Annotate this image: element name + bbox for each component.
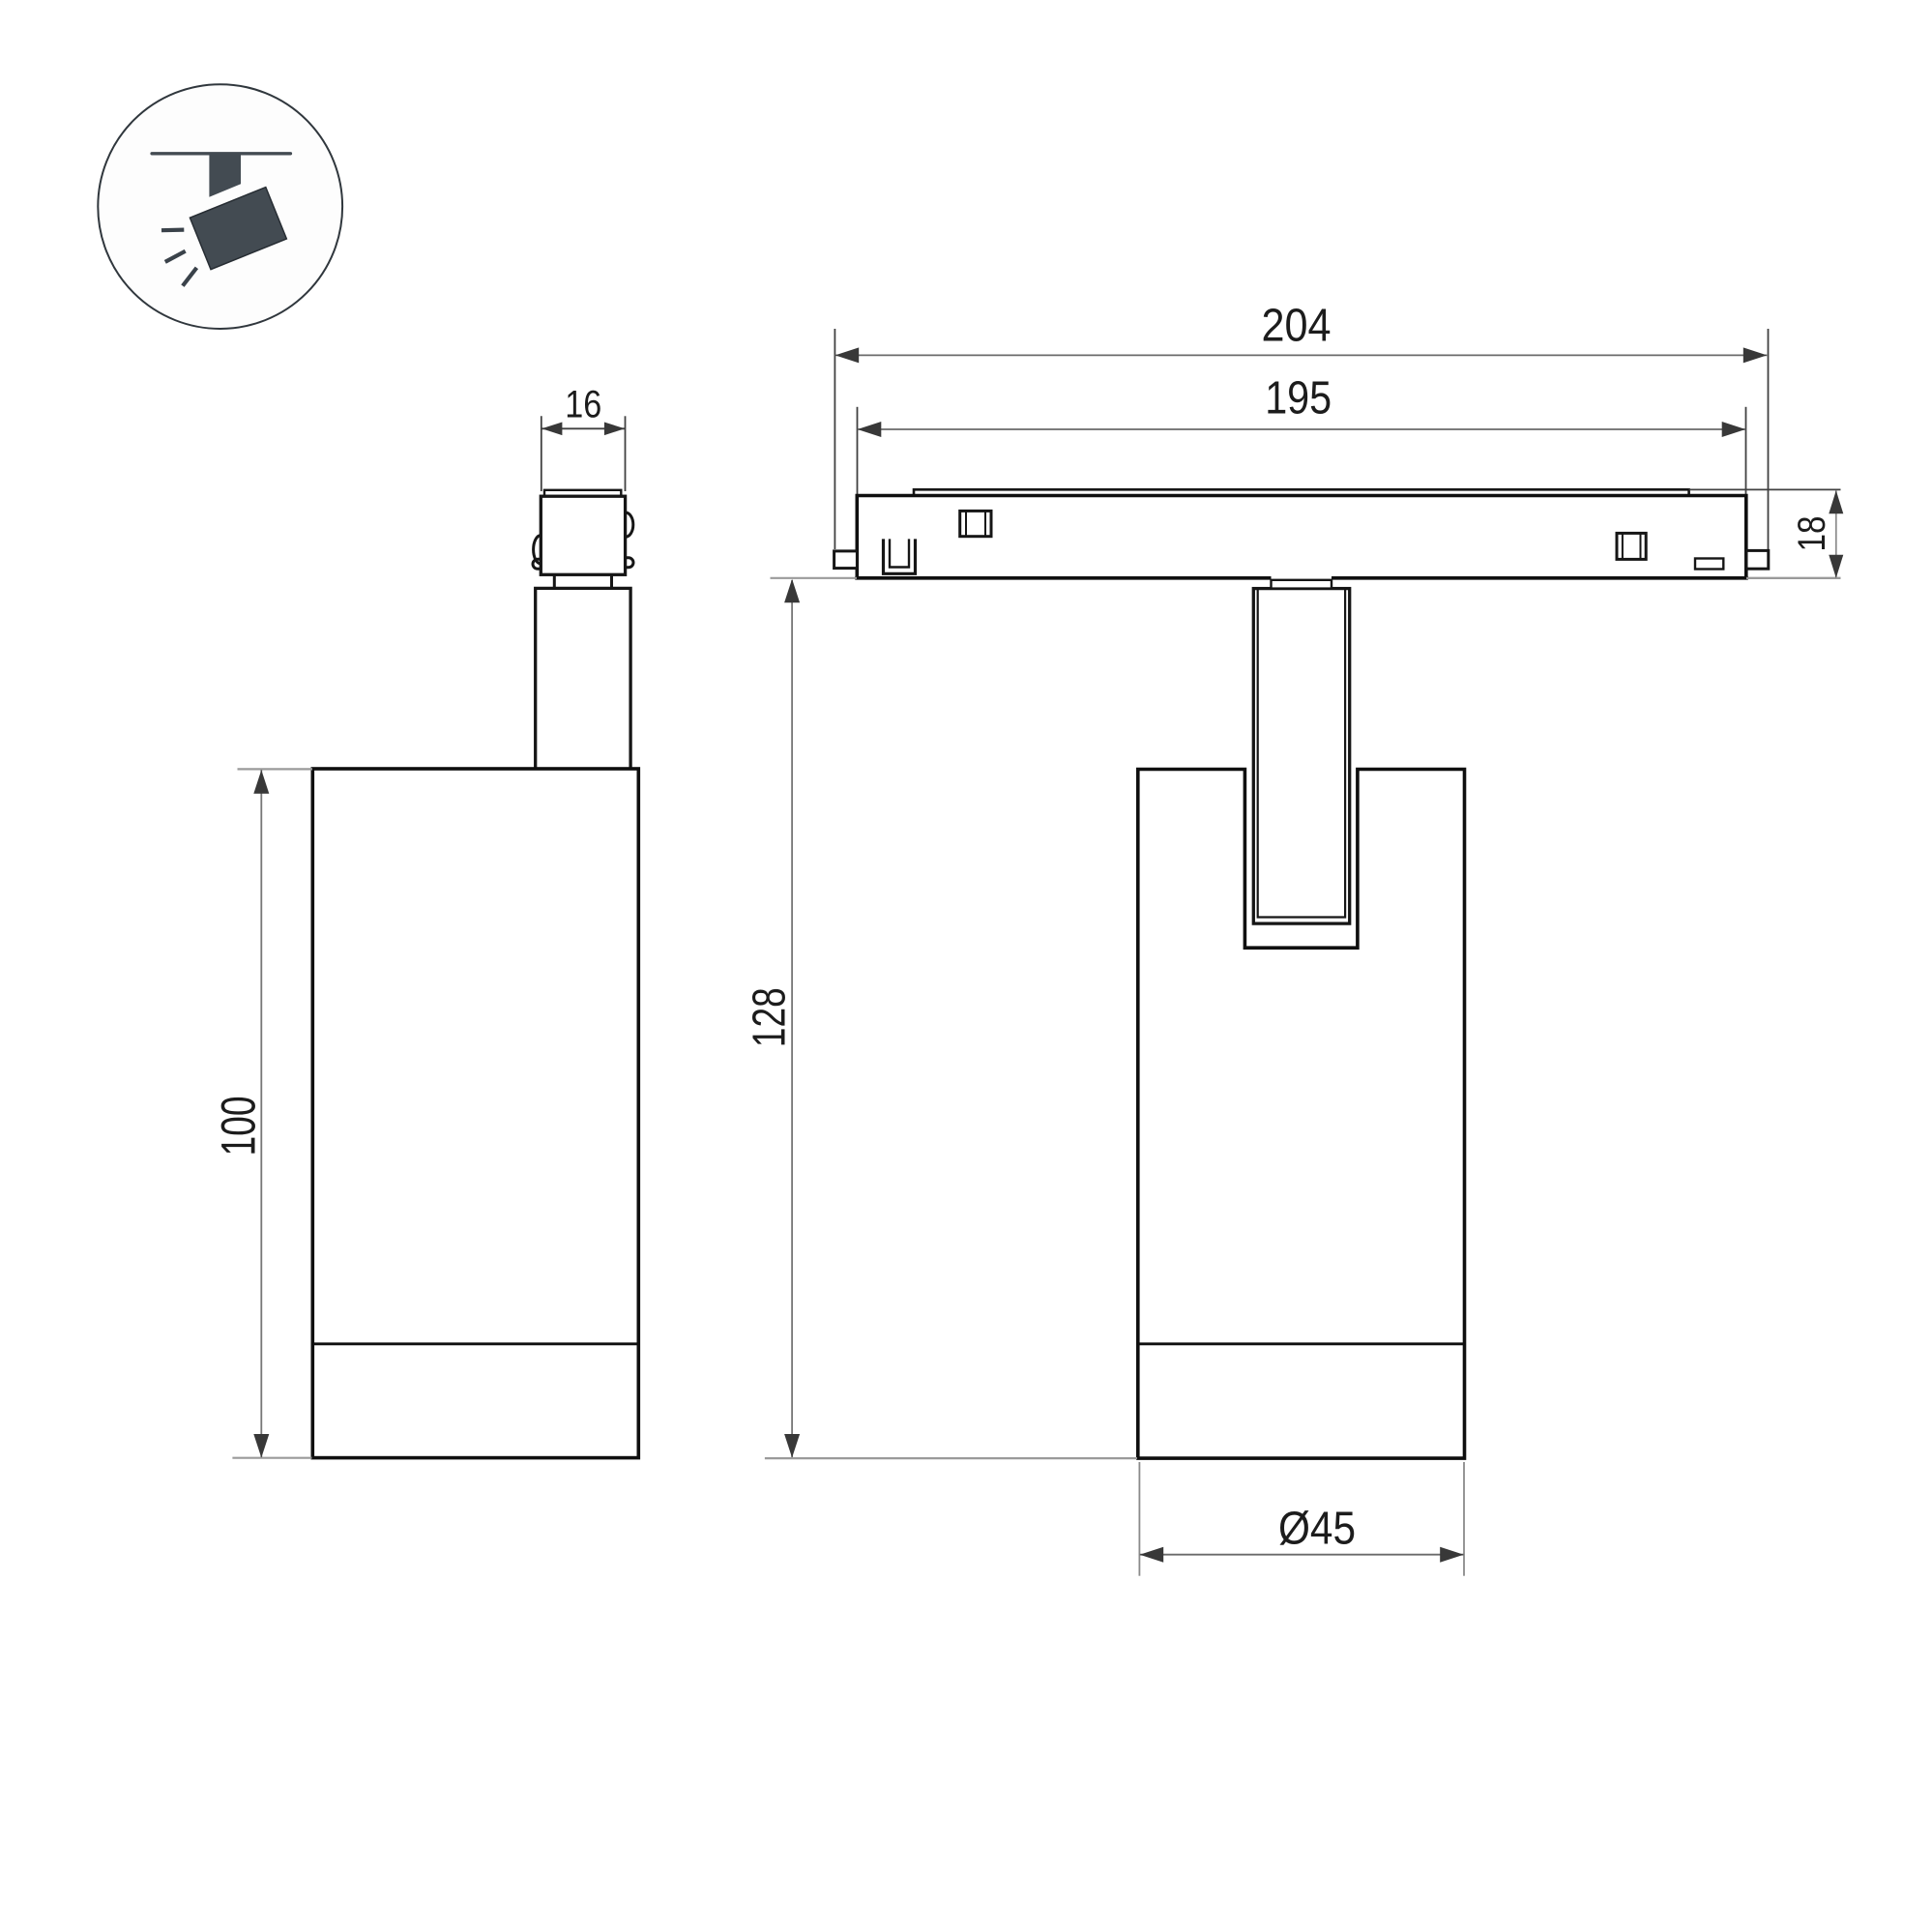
svg-text:100: 100 <box>212 1097 266 1156</box>
svg-text:16: 16 <box>565 384 601 426</box>
svg-text:18: 18 <box>1791 515 1833 551</box>
svg-text:204: 204 <box>1262 300 1332 351</box>
svg-text:195: 195 <box>1265 373 1332 424</box>
svg-text:128: 128 <box>745 987 796 1047</box>
svg-text:Ø45: Ø45 <box>1278 1503 1356 1554</box>
